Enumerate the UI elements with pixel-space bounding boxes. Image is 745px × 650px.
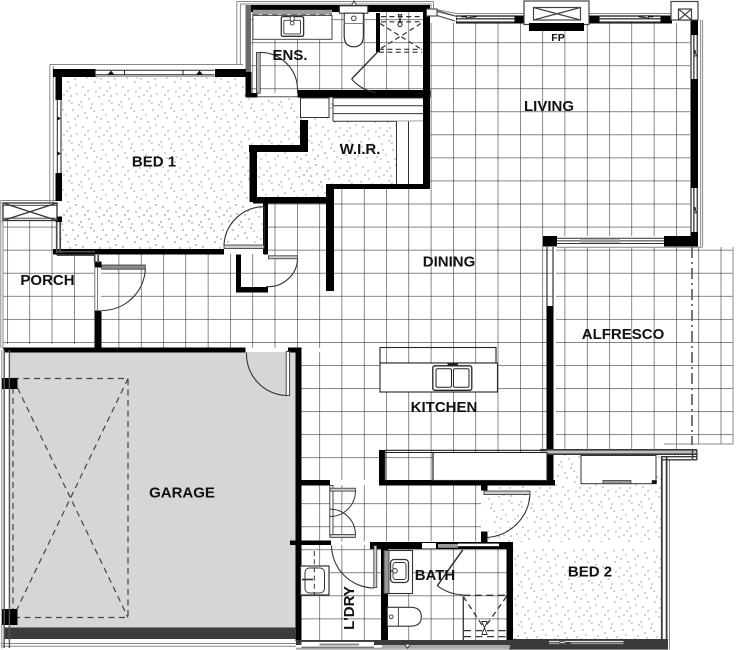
svg-text:BED 2: BED 2 (568, 564, 612, 581)
svg-text:BATH: BATH (415, 567, 456, 584)
svg-text:FP: FP (551, 32, 564, 44)
svg-text:BED 1: BED 1 (132, 154, 176, 171)
svg-text:L'DRY: L'DRY (341, 586, 358, 630)
svg-text:ENS.: ENS. (272, 47, 307, 64)
svg-text:DINING: DINING (423, 254, 476, 271)
svg-text:KITCHEN: KITCHEN (411, 399, 478, 416)
svg-text:LIVING: LIVING (524, 98, 574, 115)
svg-text:PORCH: PORCH (20, 272, 74, 289)
svg-text:W.I.R.: W.I.R. (340, 141, 381, 158)
svg-text:GARAGE: GARAGE (149, 485, 215, 502)
svg-text:ALFRESCO: ALFRESCO (582, 326, 665, 343)
